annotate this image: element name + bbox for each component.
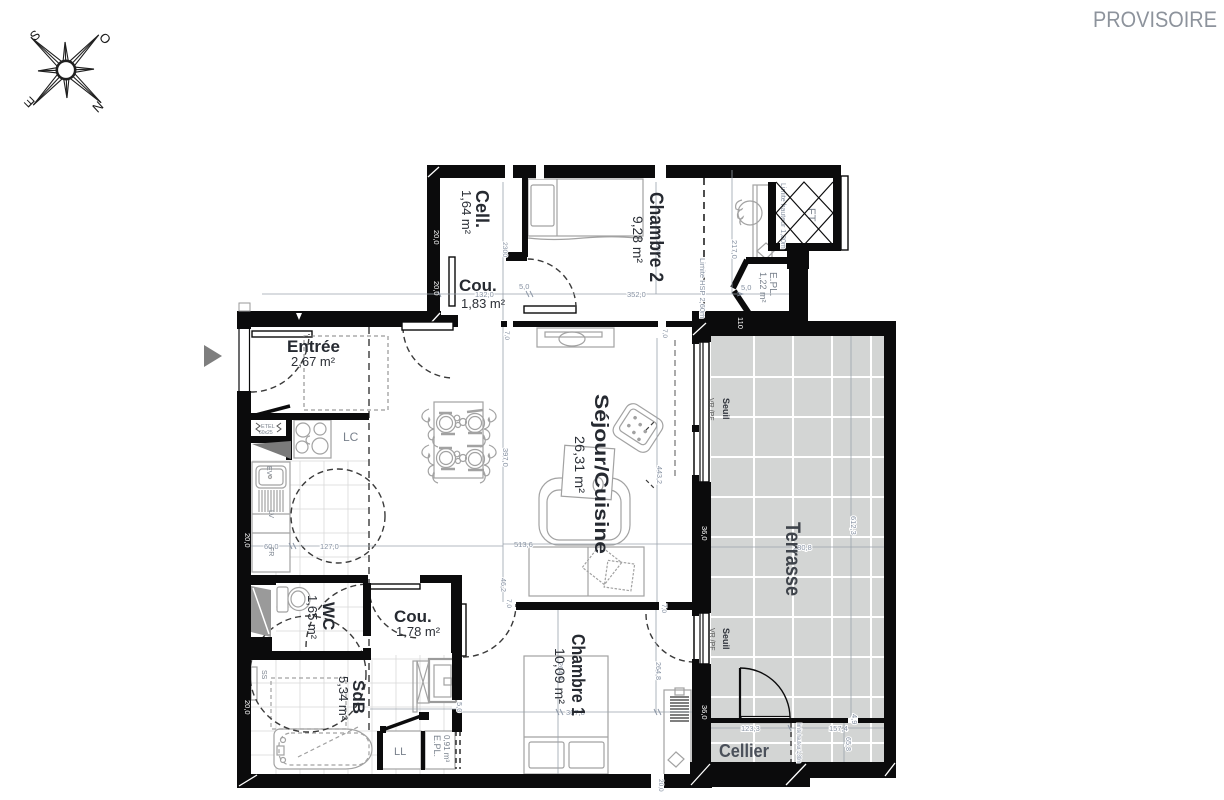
svg-text:65,8: 65,8: [844, 737, 853, 751]
svg-text:VR /PF: VR /PF: [707, 398, 714, 421]
svg-text:7,0: 7,0: [503, 331, 510, 340]
svg-text:513,6: 513,6: [514, 540, 533, 549]
svg-text:5,0: 5,0: [741, 283, 751, 292]
svg-text:0,91 m³: 0,91 m³: [442, 735, 451, 762]
svg-text:397,0: 397,0: [501, 448, 510, 467]
svg-text:1,22 m²: 1,22 m²: [758, 272, 768, 303]
svg-text:Limite HSP 2,60m: Limite HSP 2,60m: [698, 258, 707, 318]
svg-text:4,9: 4,9: [850, 714, 859, 724]
svg-text:Chambre 1: Chambre 1: [568, 634, 588, 716]
svg-text:10,09 m²: 10,09 m²: [552, 648, 568, 704]
svg-text:Cellier: Cellier: [719, 741, 769, 761]
svg-text:LV: LV: [267, 510, 274, 518]
svg-text:LL: LL: [394, 746, 406, 758]
svg-text:5,0: 5,0: [455, 702, 464, 712]
svg-text:VR /PF: VR /PF: [708, 628, 715, 651]
svg-text:SS: SS: [260, 670, 267, 680]
svg-text:FR: FR: [267, 547, 274, 556]
svg-text:FT: FT: [805, 208, 817, 222]
svg-text:7,0: 7,0: [660, 604, 667, 613]
svg-text:E.PL.: E.PL.: [432, 735, 442, 757]
svg-text:5,0: 5,0: [519, 282, 529, 291]
svg-text:26,31 m²: 26,31 m²: [572, 436, 588, 493]
svg-text:EV: EV: [265, 466, 272, 476]
svg-text:217,0: 217,0: [730, 240, 739, 259]
svg-text:2300: 2300: [501, 242, 508, 257]
svg-text:36,0: 36,0: [700, 705, 709, 720]
svg-text:264,8: 264,8: [654, 662, 663, 680]
svg-text:123,3: 123,3: [741, 724, 760, 733]
svg-text:60x25: 60x25: [259, 430, 273, 436]
svg-text:352,0: 352,0: [627, 290, 646, 299]
svg-text:Terrasse: Terrasse: [781, 522, 804, 596]
svg-text:Cou.: Cou.: [459, 276, 497, 295]
svg-text:443,2: 443,2: [655, 466, 664, 484]
svg-text:limite hauteur 1,80m: limite hauteur 1,80m: [795, 723, 801, 763]
svg-text:Seuil: Seuil: [721, 398, 731, 420]
svg-text:36,0: 36,0: [700, 526, 709, 541]
svg-text:46,2: 46,2: [499, 578, 508, 592]
svg-text:2,67 m²: 2,67 m²: [291, 354, 336, 369]
svg-text:157,4: 157,4: [829, 724, 848, 733]
svg-text:1,78 m²: 1,78 m²: [396, 624, 441, 639]
svg-text:Séjour/Cuisine: Séjour/Cuisine: [590, 394, 611, 554]
svg-text:9,28 m²: 9,28 m²: [630, 216, 646, 263]
svg-text:1,65 m²: 1,65 m²: [305, 595, 320, 640]
svg-text:110: 110: [736, 317, 745, 329]
svg-text:7,0: 7,0: [505, 599, 512, 608]
svg-text:20,0: 20,0: [657, 779, 664, 792]
svg-text:20,0: 20,0: [432, 281, 441, 296]
svg-text:Seuil: Seuil: [721, 628, 731, 650]
svg-text:PROVISOIRE: PROVISOIRE: [1093, 7, 1217, 32]
svg-text:20,0: 20,0: [243, 533, 252, 548]
svg-text:Cell.: Cell.: [472, 190, 492, 228]
svg-text:LC: LC: [343, 430, 359, 444]
svg-text:1,64 m²: 1,64 m²: [459, 190, 474, 235]
svg-text:1,83 m²: 1,83 m²: [461, 296, 506, 311]
svg-text:612,3: 612,3: [849, 516, 858, 535]
svg-text:WC: WC: [319, 602, 338, 630]
svg-text:5,34 m²: 5,34 m²: [336, 676, 351, 721]
svg-text:20,0: 20,0: [432, 230, 441, 245]
svg-text:127,0: 127,0: [320, 542, 339, 551]
svg-text:7,0: 7,0: [661, 329, 668, 338]
svg-text:Limite hauteur 1,80m: Limite hauteur 1,80m: [779, 183, 786, 249]
svg-text:Chambre 2: Chambre 2: [645, 192, 666, 282]
svg-text:20,0: 20,0: [243, 700, 252, 715]
